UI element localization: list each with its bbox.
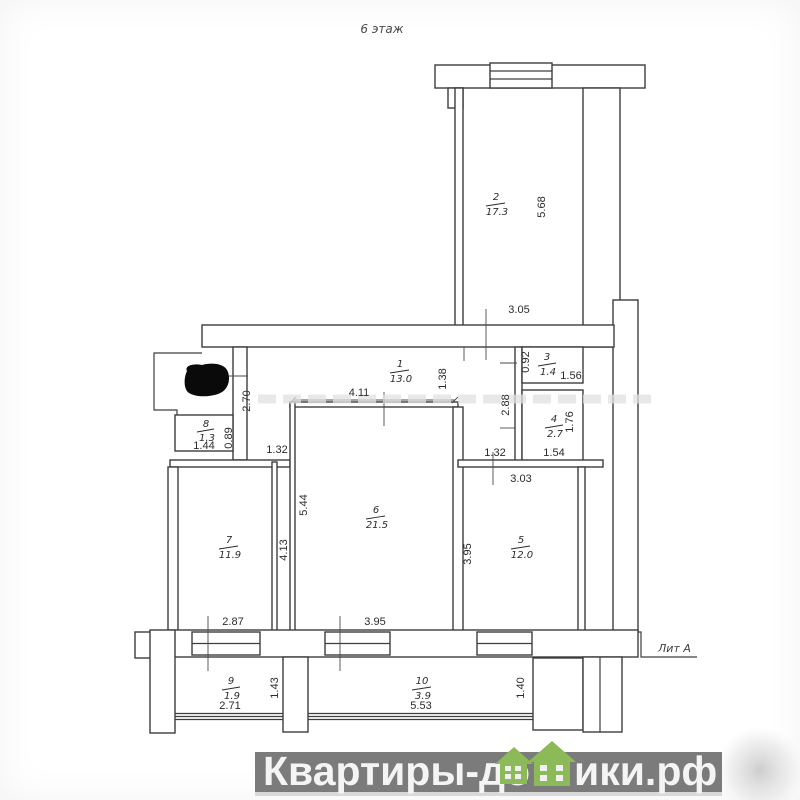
svg-text:7: 7 <box>226 535 233 546</box>
svg-text:4: 4 <box>551 414 557 425</box>
room-label-10: 10 3.9 <box>412 676 431 702</box>
dimension-label: 1.38 <box>437 368 449 389</box>
dimension-label: 0.92 <box>520 351 532 372</box>
svg-text:21.5: 21.5 <box>366 520 388 531</box>
watermark-text-left: Квартиры-до <box>263 748 530 794</box>
svg-text:2: 2 <box>493 192 499 203</box>
door-opening-room5 <box>478 461 499 466</box>
balcony-divider <box>283 657 308 732</box>
dimension-label: 1.76 <box>564 411 576 432</box>
dimension-label: 4.13 <box>278 539 290 560</box>
watermark-blur-blob <box>716 726 800 800</box>
dimension-label: 2.88 <box>500 394 512 415</box>
dimension-label: 1.56 <box>560 370 581 382</box>
svg-text:10: 10 <box>416 676 429 687</box>
svg-text:6: 6 <box>373 505 379 516</box>
svg-text:3: 3 <box>544 352 550 363</box>
dimension-label: 2.70 <box>241 390 253 411</box>
svg-text:1: 1 <box>397 359 403 370</box>
svg-text:17.3: 17.3 <box>486 207 508 218</box>
dimension-label: 5.68 <box>536 196 548 217</box>
dimension-label: 1.54 <box>543 447 564 459</box>
dimension-label: 3.95 <box>364 616 385 628</box>
svg-text:12.0: 12.0 <box>511 550 533 561</box>
room-label-2: 2 17.3 <box>486 192 508 218</box>
floor-title: 6 этаж <box>360 22 403 36</box>
window-top <box>490 63 552 88</box>
watermark-text-right: ики.рф <box>574 748 717 794</box>
dimension-label: 1.44 <box>193 440 214 452</box>
dimension-label: 2.71 <box>219 700 240 712</box>
floor-plan-drawing: 6 этаж <box>0 0 800 800</box>
door-opening-room2 <box>464 327 485 346</box>
dimension-label: 1.43 <box>269 677 281 698</box>
dimension-label: 0.89 <box>223 427 235 448</box>
dimension-label: 1.32 <box>484 447 505 459</box>
svg-text:2.7: 2.7 <box>547 429 564 440</box>
room-label-1: 1 13.0 <box>390 359 412 385</box>
dimension-label: 5.53 <box>410 700 431 712</box>
svg-text:5: 5 <box>518 535 524 546</box>
room-label-5: 5 12.0 <box>511 535 533 561</box>
dimension-label: 3.05 <box>508 304 529 316</box>
room-label-9: 9 1.9 <box>222 676 240 702</box>
site-watermark: Квартиры-до ики.рф <box>255 741 722 796</box>
liter-label: Лит А <box>657 642 691 655</box>
dimension-label: 5.44 <box>298 494 310 515</box>
dimension-label: 2.87 <box>222 616 243 628</box>
svg-text:9: 9 <box>228 676 234 687</box>
dimension-label: 1.40 <box>515 677 527 698</box>
room-label-7: 7 11.9 <box>219 535 241 561</box>
dimension-label: 1.32 <box>266 444 287 456</box>
house-icon <box>528 741 576 786</box>
dimension-label: 4.11 <box>349 387 370 399</box>
svg-text:13.0: 13.0 <box>390 374 412 385</box>
svg-text:11.9: 11.9 <box>219 550 241 561</box>
room-label-6: 6 21.5 <box>366 505 388 531</box>
redaction-stamp <box>185 364 229 397</box>
floor-plan-page: 6 этаж <box>0 0 800 800</box>
svg-text:8: 8 <box>203 419 209 430</box>
svg-text:1.4: 1.4 <box>540 367 556 378</box>
dimension-label: 3.03 <box>510 473 531 485</box>
dimension-label: 3.95 <box>462 543 474 564</box>
